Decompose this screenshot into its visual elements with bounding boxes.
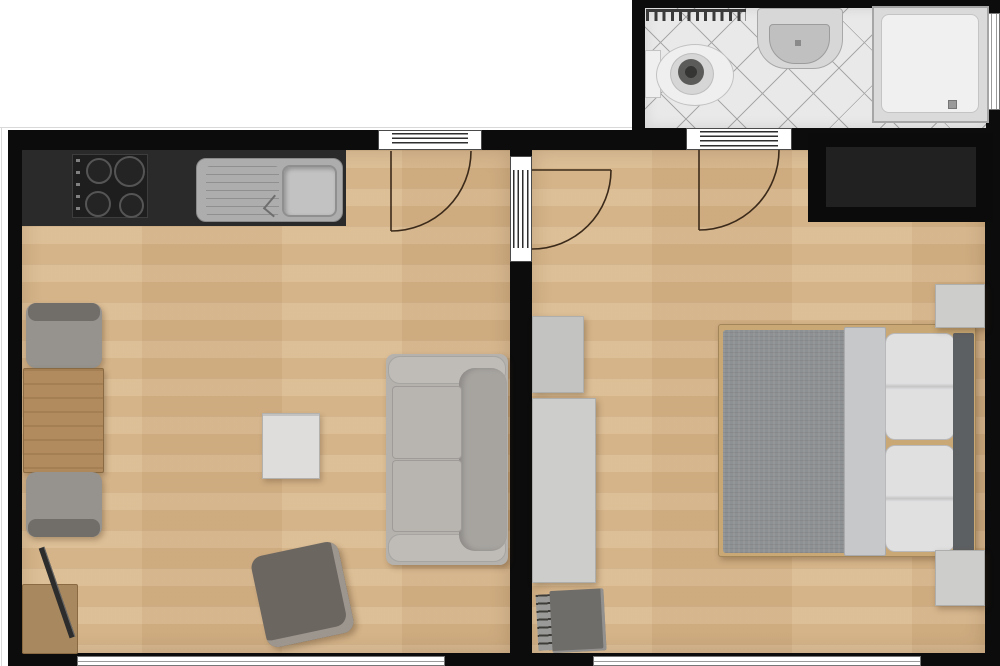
floor-plan <box>0 0 1000 666</box>
door-frame-lines <box>513 170 529 248</box>
shower-tray <box>881 14 979 113</box>
living-room-door-frame <box>378 130 482 150</box>
outer-edge-line-top <box>0 127 632 128</box>
wall-segment <box>632 128 688 150</box>
kitchen-sink <box>196 158 343 222</box>
bathroom-door-frame <box>686 128 792 150</box>
coffee-table <box>262 413 320 479</box>
bed-blanket <box>723 330 851 553</box>
washbasin <box>757 8 843 69</box>
wardrobe <box>532 398 596 583</box>
wall-segment <box>510 261 532 653</box>
towel-radiator <box>646 9 746 21</box>
chair-backrest <box>28 303 100 321</box>
shower <box>872 6 989 123</box>
sofa <box>386 354 508 565</box>
wall-segment <box>480 130 632 150</box>
sofa-backrest <box>459 368 507 551</box>
stove-burner <box>86 158 112 184</box>
outer-edge-line-left <box>1 127 2 666</box>
stove-knobs <box>76 159 80 215</box>
living-room-window <box>77 656 445 666</box>
bed-pillow <box>885 445 955 552</box>
bed-blanket-fold <box>844 327 886 556</box>
dining-chair <box>26 303 102 368</box>
wall-segment <box>632 0 645 130</box>
stove-burner <box>119 193 144 218</box>
dresser <box>532 316 584 393</box>
wall-segment <box>8 130 22 666</box>
door-frame-lines <box>700 131 778 147</box>
stove-hob <box>72 154 148 218</box>
double-bed <box>718 324 976 557</box>
wall-segment <box>8 130 380 150</box>
bed-pillow <box>885 333 955 440</box>
built-in-wardrobe-door <box>826 147 976 207</box>
bedroom-window <box>593 656 921 666</box>
shower-drain <box>948 100 957 109</box>
stove-burner <box>114 156 145 187</box>
dining-table <box>23 368 104 473</box>
sofa-cushion <box>392 460 462 532</box>
door-frame-lines <box>392 133 468 147</box>
armchair <box>249 540 355 649</box>
dining-chair <box>26 472 102 537</box>
washbasin-drain <box>795 40 801 46</box>
nightstand <box>935 550 985 606</box>
radiator-panel <box>549 588 606 653</box>
stove-burner <box>85 191 111 217</box>
nightstand <box>935 284 985 328</box>
chair-backrest <box>28 519 100 537</box>
built-in-wardrobe <box>808 133 993 222</box>
bedroom-door-frame <box>510 156 532 262</box>
bed-headboard <box>953 333 974 552</box>
sofa-cushion <box>392 386 462 459</box>
toilet-drain <box>678 59 704 85</box>
sink-basin <box>282 165 337 217</box>
bedroom-radiator <box>535 588 608 654</box>
